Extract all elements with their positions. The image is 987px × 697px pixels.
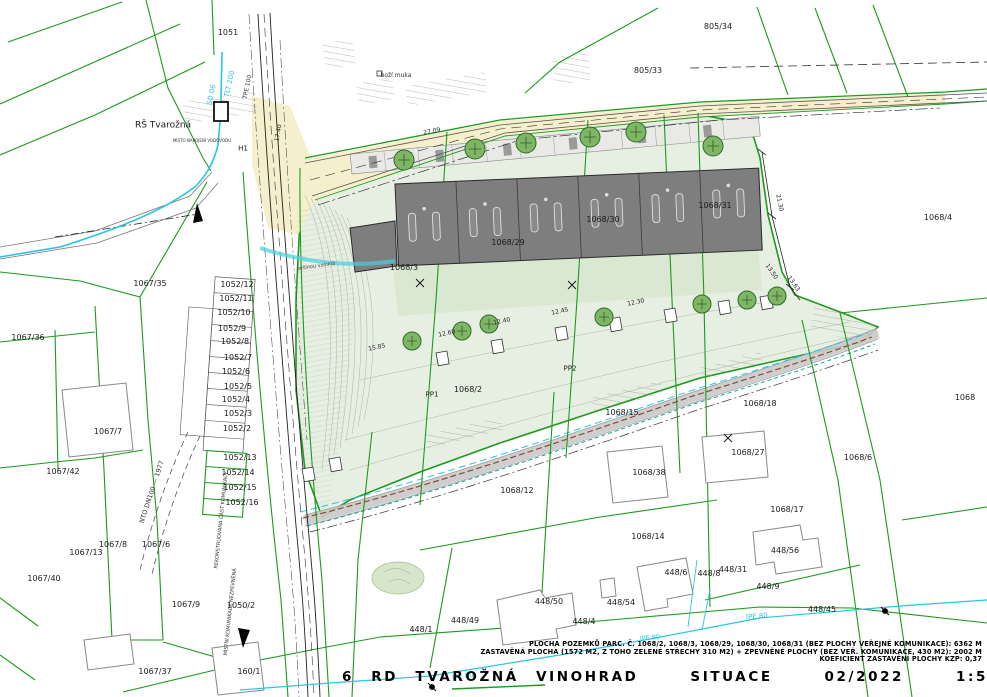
drawing-title: 6 RD TVAROŽNÁ VINOHRAD SITUACE 02/2022 1…: [342, 669, 982, 685]
site-plan-canvas: [0, 0, 987, 697]
parcel-ladder: [175, 275, 259, 517]
title-block: PLOCHA POZEMKŮ PARC. Č. 1068/2, 1068/3, …: [342, 641, 982, 685]
area-summary-line3: KOEFICIENT ZASTAVĚNÍ PLOCHY KZP: 0,37: [342, 656, 982, 664]
pressure-station-symbol: [214, 102, 228, 121]
north-arrow: [193, 203, 203, 223]
wayside-shrine-symbol: [377, 71, 382, 76]
site-plan-drawing: 1051805/34805/331067/351067/361052/12105…: [0, 0, 987, 697]
